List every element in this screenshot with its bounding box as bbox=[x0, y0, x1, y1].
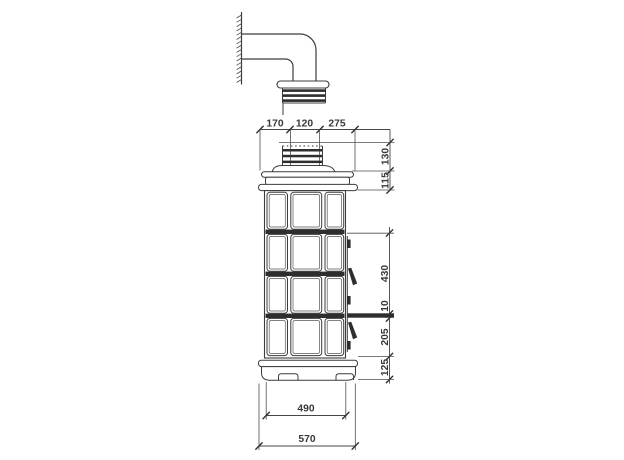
wall-hatching bbox=[237, 15, 242, 83]
lower-door-handle bbox=[348, 322, 357, 340]
tile bbox=[325, 234, 344, 271]
collar-rib bbox=[283, 161, 322, 164]
crown-band-middle bbox=[266, 177, 350, 184]
door-hinge bbox=[347, 341, 351, 350]
base-molding-band bbox=[259, 360, 358, 366]
tile bbox=[291, 234, 322, 271]
tile-gap-band bbox=[266, 272, 345, 276]
tile bbox=[267, 318, 288, 355]
collar-dome bbox=[272, 166, 335, 173]
dim-label-275: 275 bbox=[328, 119, 345, 130]
tile-gap-band bbox=[266, 230, 345, 234]
connector-rib bbox=[283, 99, 326, 102]
stove-body bbox=[265, 191, 358, 358]
stove-elevation-drawing: 170 120 275 130 115 430 10 205 125 bbox=[0, 0, 624, 460]
tile bbox=[291, 192, 322, 229]
collar-rib bbox=[283, 149, 322, 152]
door-hinge bbox=[347, 240, 351, 249]
tile bbox=[267, 234, 288, 271]
tile bbox=[267, 276, 288, 313]
dimension-chain-bottom: 490 570 bbox=[256, 382, 359, 450]
upper-door-handle bbox=[348, 268, 357, 286]
connector-cap bbox=[277, 81, 329, 88]
dim-label-125: 125 bbox=[380, 359, 391, 376]
dim-label-130: 130 bbox=[381, 148, 392, 165]
dim-label-115: 115 bbox=[381, 172, 392, 189]
collar-rib bbox=[283, 155, 322, 158]
stove-base bbox=[259, 360, 358, 380]
wall-flue-connector bbox=[277, 81, 329, 115]
extension-band bbox=[347, 313, 394, 317]
connector-rib bbox=[283, 89, 326, 92]
tile bbox=[325, 318, 344, 355]
dim-label-170: 170 bbox=[266, 119, 283, 130]
flue-elbow-pipe bbox=[242, 34, 317, 81]
connector-rib bbox=[283, 94, 326, 97]
dim-label-570: 570 bbox=[298, 434, 315, 445]
crown-band-bottom bbox=[259, 184, 358, 190]
crown-band-top bbox=[262, 172, 354, 177]
door-hinge bbox=[347, 296, 351, 305]
tile-gap-band bbox=[266, 314, 345, 318]
dim-label-120: 120 bbox=[296, 119, 313, 130]
dim-label-10: 10 bbox=[380, 300, 391, 312]
pipe-inner-line bbox=[242, 59, 294, 81]
stove-top-collar bbox=[272, 146, 335, 172]
stove-crown-molding bbox=[259, 172, 358, 191]
tile bbox=[291, 276, 322, 313]
stove-doors bbox=[347, 236, 357, 352]
dim-label-430: 430 bbox=[380, 265, 391, 282]
tile bbox=[267, 192, 288, 229]
technical-drawing-canvas: 170 120 275 130 115 430 10 205 125 bbox=[0, 0, 624, 460]
wall-section bbox=[237, 13, 242, 85]
tile bbox=[325, 192, 344, 229]
dimension-chain-top: 170 120 275 bbox=[257, 119, 390, 171]
dim-label-205: 205 bbox=[380, 328, 391, 345]
pipe-outer-line bbox=[242, 34, 317, 81]
tile bbox=[291, 318, 322, 355]
tile bbox=[325, 276, 344, 313]
dim-label-490: 490 bbox=[297, 404, 314, 415]
